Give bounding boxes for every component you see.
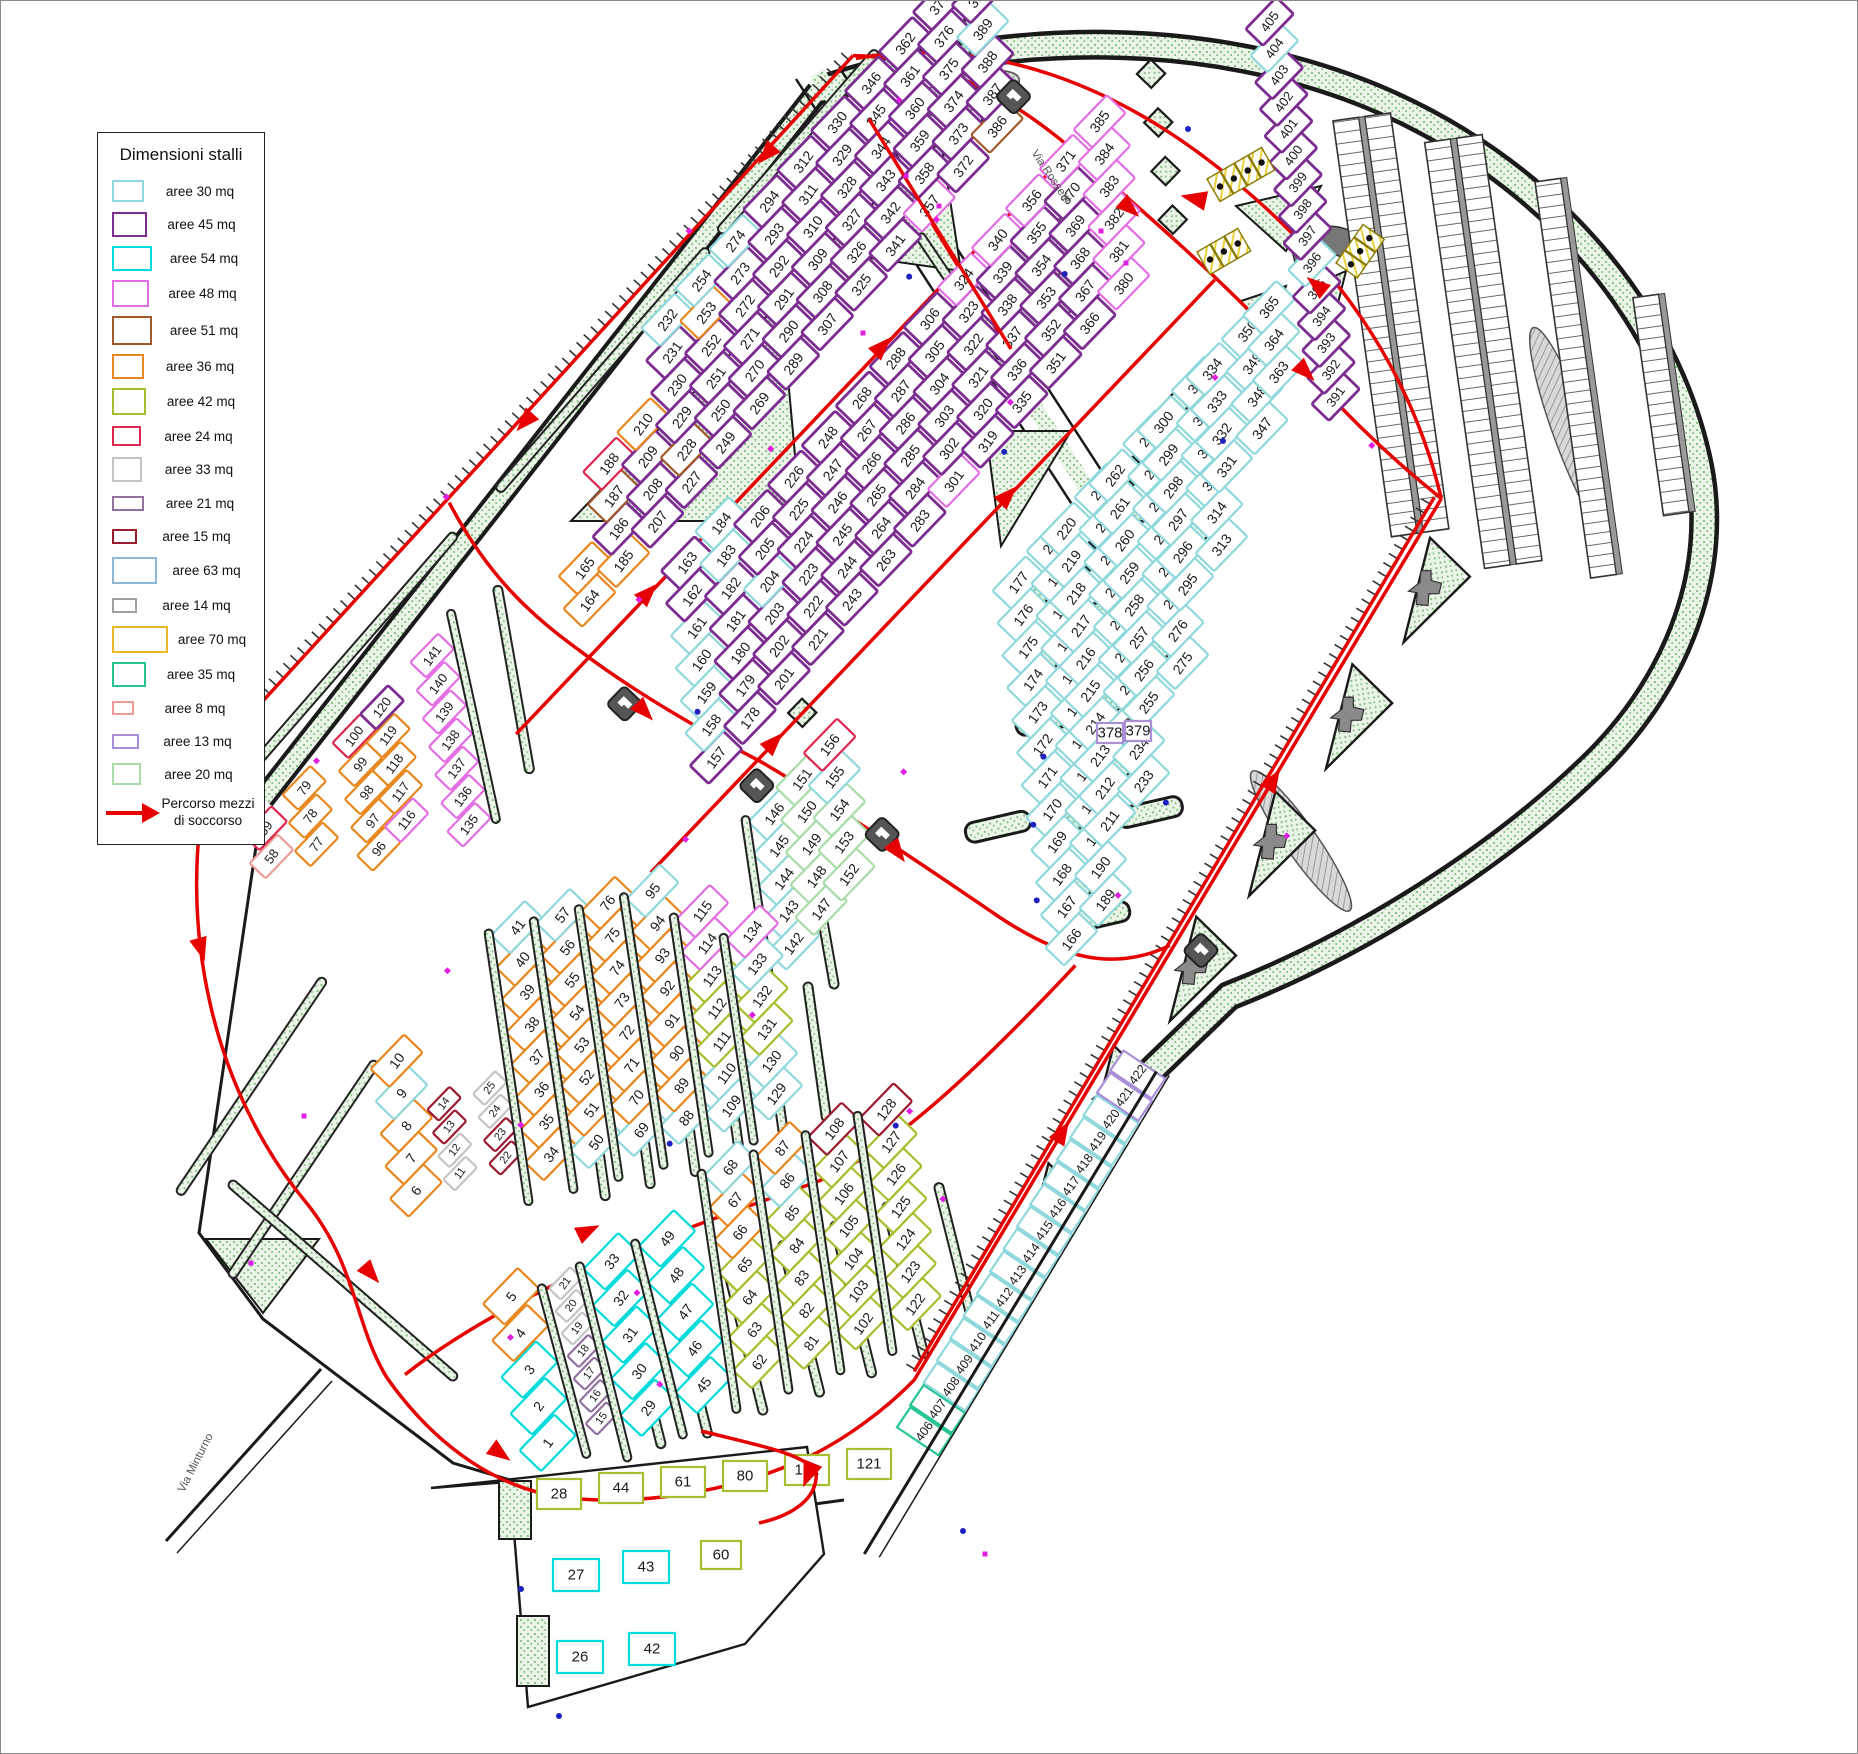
- stall-60: 60: [701, 1541, 741, 1569]
- legend-route-row: Percorso mezzi di soccorso: [106, 796, 256, 830]
- legend-label: aree 51 mq: [152, 323, 256, 338]
- legend-swatch-a35: [112, 662, 146, 687]
- legend-swatch-a15: [112, 529, 137, 544]
- legend-item-a35: aree 35 mq: [106, 662, 256, 687]
- green-area: [517, 1616, 549, 1686]
- legend-label: aree 14 mq: [137, 598, 256, 613]
- legend-item-a8: aree 8 mq: [106, 696, 256, 720]
- legend-swatch-a13: [112, 734, 139, 749]
- utility-marker: [1185, 126, 1191, 132]
- hydrant-marker: [1124, 261, 1129, 266]
- legend-label: aree 35 mq: [146, 667, 256, 682]
- route-arrow: [357, 1259, 386, 1289]
- stall-379: 379: [1125, 721, 1151, 741]
- legend-item-a33: aree 33 mq: [106, 457, 256, 482]
- utility-marker: [905, 272, 913, 280]
- legend-item-a21: aree 21 mq: [106, 491, 256, 515]
- hydrant-marker: [937, 204, 942, 209]
- legend-label: aree 15 mq: [137, 529, 256, 544]
- legend-item-a70: aree 70 mq: [106, 626, 256, 653]
- legend-swatch-a51: [112, 316, 152, 345]
- route-arrow: [574, 1217, 603, 1244]
- legend-swatch-a36: [112, 354, 144, 379]
- legend-item-a36: aree 36 mq: [106, 354, 256, 379]
- legend-swatch-a54: [112, 246, 152, 271]
- site-plan-svg: 1641651851861871882072082092102272282292…: [1, 1, 1858, 1754]
- stall-61: 61: [661, 1467, 705, 1497]
- utility-marker: [960, 1528, 966, 1534]
- stall-number: 60: [713, 1547, 730, 1564]
- legend-label: aree 8 mq: [134, 701, 256, 716]
- utility-marker: [1220, 438, 1226, 444]
- stall-number: 378: [1097, 725, 1122, 742]
- legend-item-a24: aree 24 mq: [106, 424, 256, 448]
- legend-item-a15: aree 15 mq: [106, 524, 256, 548]
- hydrant-marker: [983, 1552, 988, 1557]
- stall-number: 28: [551, 1486, 568, 1503]
- hydrant-marker: [249, 1261, 254, 1266]
- planter-capsule: [964, 810, 1033, 844]
- hedge-strip: [493, 585, 535, 774]
- hydrant-marker: [444, 967, 451, 974]
- legend-label: aree 63 mq: [157, 563, 256, 578]
- hydrant-marker: [904, 174, 909, 179]
- stall-44: 44: [599, 1473, 643, 1503]
- hedge-strip: [803, 982, 831, 1122]
- legend-swatch-a70: [112, 626, 168, 653]
- legend-label: aree 54 mq: [152, 251, 256, 266]
- legend-label: aree 36 mq: [144, 359, 256, 374]
- hydrant-marker: [906, 1108, 913, 1115]
- legend-label: aree 13 mq: [139, 734, 256, 749]
- stall-121: 121: [847, 1449, 891, 1479]
- stall-number: 43: [638, 1559, 655, 1576]
- legend-label: aree 42 mq: [146, 394, 256, 409]
- legend-swatch-a42: [112, 388, 146, 415]
- legend-item-a14: aree 14 mq: [106, 593, 256, 617]
- legend-panel: Dimensioni stalli aree 30 mqaree 45 mqar…: [97, 132, 265, 845]
- stall-27: 27: [553, 1559, 599, 1591]
- legend-swatch-a14: [112, 598, 137, 613]
- legend-label: aree 20 mq: [141, 767, 256, 782]
- legend-item-a20: aree 20 mq: [106, 762, 256, 786]
- hydrant-marker: [313, 757, 320, 764]
- legend-title: Dimensioni stalli: [106, 145, 256, 165]
- tree-area: [1371, 538, 1474, 651]
- stall-28: 28: [537, 1479, 581, 1509]
- utility-marker: [665, 1139, 673, 1147]
- stall-number: 26: [572, 1649, 589, 1666]
- legend-item-a63: aree 63 mq: [106, 557, 256, 584]
- via-minturno-road: [166, 1369, 321, 1541]
- legend-swatch-a20: [112, 763, 141, 785]
- legend-label: aree 33 mq: [142, 462, 256, 477]
- legend-label: aree 24 mq: [141, 429, 256, 444]
- stall-number: 121: [856, 1456, 881, 1473]
- legend-label: aree 45 mq: [147, 217, 256, 232]
- legend-item-a45: aree 45 mq: [106, 212, 256, 237]
- legend-swatch-a24: [112, 426, 141, 446]
- planter-square: [1151, 157, 1179, 185]
- legend-swatch-a21: [112, 496, 144, 511]
- legend-item-a42: aree 42 mq: [106, 388, 256, 415]
- stall-378: 378: [1097, 723, 1123, 743]
- legend-swatch-a45: [112, 212, 147, 237]
- route-arrow: [1178, 186, 1208, 211]
- utility-marker: [518, 1586, 524, 1592]
- street-label-minturno: Via Minturno: [176, 1432, 216, 1495]
- route-arrow: [510, 407, 539, 437]
- legend-label: aree 70 mq: [168, 632, 256, 647]
- stall-42: 42: [629, 1633, 675, 1665]
- utility-marker: [556, 1713, 562, 1719]
- legend-route-label: Percorso mezzi di soccorso: [160, 796, 256, 830]
- legend-item-a51: aree 51 mq: [106, 316, 256, 345]
- hydrant-marker: [861, 331, 866, 336]
- legend-item-a13: aree 13 mq: [106, 729, 256, 753]
- stall-number: 80: [737, 1468, 754, 1485]
- stall-43: 43: [623, 1551, 669, 1583]
- stall-number: 27: [568, 1567, 585, 1584]
- hydrant-marker: [302, 1114, 307, 1119]
- legend-swatch-a48: [112, 280, 149, 307]
- legend-item-a54: aree 54 mq: [106, 246, 256, 271]
- legend-swatch-a33: [112, 457, 142, 482]
- legend-label: aree 48 mq: [149, 286, 256, 301]
- stall-number: 61: [675, 1474, 692, 1491]
- disabled-parking: [1207, 148, 1275, 202]
- hydrant-marker: [1099, 229, 1104, 234]
- stall-number: 44: [613, 1480, 630, 1497]
- stall-80: 80: [723, 1461, 767, 1491]
- hydrant-marker: [900, 768, 907, 775]
- legend-label: aree 30 mq: [144, 184, 256, 199]
- stall-number: 42: [644, 1641, 661, 1658]
- emergency-route-arrow-icon: [106, 810, 160, 816]
- legend-swatch-a8: [112, 701, 134, 715]
- utility-marker: [1033, 896, 1041, 904]
- route-arrow: [486, 1439, 516, 1468]
- site-plan-page: 1641651851861871882072082092102272282292…: [0, 0, 1858, 1754]
- hydrant-marker: [1368, 442, 1375, 449]
- legend-item-a30: aree 30 mq: [106, 179, 256, 203]
- stall-number: 379: [1125, 723, 1150, 740]
- legend-rows: aree 30 mqaree 45 mqaree 54 mqaree 48 mq…: [106, 179, 256, 786]
- legend-item-a48: aree 48 mq: [106, 280, 256, 307]
- legend-swatch-a30: [112, 180, 144, 202]
- stall-26: 26: [557, 1641, 603, 1673]
- legend-label: aree 21 mq: [144, 496, 256, 511]
- planter-square: [1137, 60, 1165, 88]
- legend-swatch-a63: [112, 557, 157, 584]
